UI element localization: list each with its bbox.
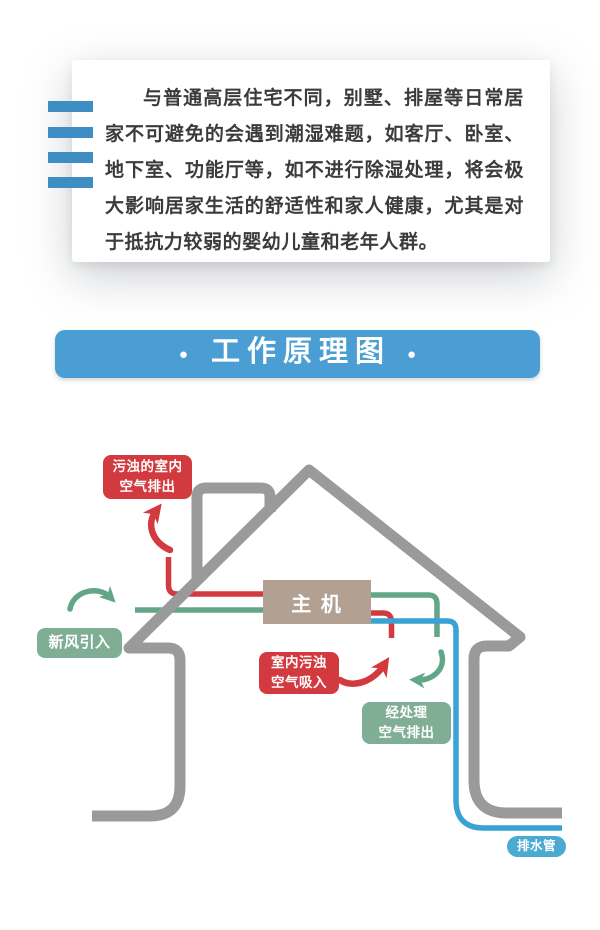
bullet-icon: ● (179, 347, 188, 362)
label-line: 排水管 (517, 837, 556, 855)
house-outline (92, 470, 562, 816)
pipe-supply-green (368, 595, 437, 637)
arrow-return-up-icon (340, 665, 384, 684)
arrow-supply-down-icon (417, 652, 442, 680)
pipe-return-red (368, 613, 392, 638)
infographic-page: 与普通高层住宅不同，别墅、排屋等日常居家不可避免的会遇到潮湿难题，如客厅、卧室、… (0, 0, 600, 930)
working-principle-diagram: 主 机 污浊的室内 空气排出 新风引入 室内污浊 空气吸入 经处理 空气排出 排… (0, 430, 600, 930)
intro-paragraph: 与普通高层住宅不同，别墅、排屋等日常居家不可避免的会遇到潮湿难题，如客厅、卧室、… (72, 60, 550, 261)
decoration-bar (48, 101, 93, 112)
label-line: 空气排出 (379, 723, 435, 743)
main-unit-box: 主 机 (263, 580, 371, 624)
label-line: 空气吸入 (271, 673, 327, 693)
decoration-bars (48, 101, 93, 191)
arrow-fresh-in-icon (70, 591, 110, 609)
label-line: 室内污浊 (271, 653, 327, 673)
arrow-exhaust-up-icon (151, 511, 170, 550)
main-unit-label: 主 机 (291, 588, 343, 617)
drain-pipe-label: 排水管 (507, 836, 566, 857)
section-title: 工作原理图 (204, 338, 391, 370)
fresh-air-in-label: 新风引入 (37, 628, 122, 658)
section-title-banner: ● 工作原理图 ● (55, 330, 540, 378)
label-line: 污浊的室内 (113, 457, 183, 477)
label-line: 空气排出 (120, 477, 176, 497)
bullet-icon: ● (407, 347, 416, 362)
indoor-air-suction-label: 室内污浊 空气吸入 (259, 652, 339, 694)
label-line: 新风引入 (48, 632, 110, 654)
intro-card: 与普通高层住宅不同，别墅、排屋等日常居家不可避免的会遇到潮湿难题，如客厅、卧室、… (72, 60, 550, 262)
dirty-air-out-label: 污浊的室内 空气排出 (103, 455, 192, 499)
label-line: 经处理 (386, 703, 428, 723)
decoration-bar (48, 177, 93, 188)
decoration-bar (48, 152, 93, 163)
decoration-bar (48, 127, 93, 138)
treated-air-out-label: 经处理 空气排出 (362, 702, 451, 744)
